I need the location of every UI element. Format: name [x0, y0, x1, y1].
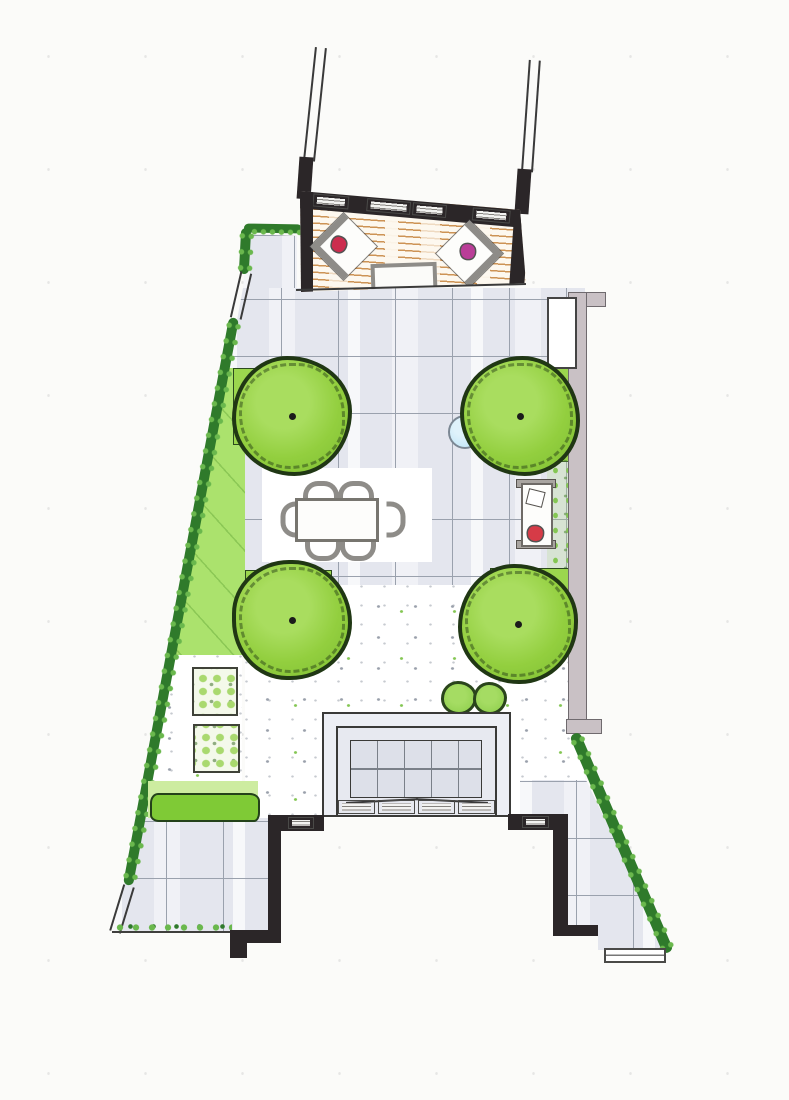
tree-bottom-left	[232, 560, 352, 680]
tree-trunk-dot	[289, 413, 296, 420]
house-wall-left	[268, 815, 281, 943]
sliding-door-panel-3	[418, 800, 455, 814]
storage-unit	[547, 297, 577, 369]
garden-plan-page	[0, 0, 789, 1100]
shrub-1	[441, 681, 477, 715]
house-wall-right	[553, 826, 568, 936]
wing-window-right	[522, 816, 549, 828]
house-wall-bottom-left	[230, 930, 281, 943]
neighbor-wall-line-right	[521, 60, 541, 173]
wing-window-left	[288, 817, 314, 829]
neighbor-wall-line-left	[303, 47, 327, 162]
sliding-door-panel-4	[458, 800, 495, 814]
dining-table	[295, 498, 379, 542]
boundary-hedge-bottom	[112, 922, 232, 933]
neighbor-wall-post-right	[514, 169, 531, 215]
house-wall-stub	[230, 943, 247, 958]
house-wall-step-right	[566, 925, 598, 936]
privacy-screen-panel-1	[312, 193, 349, 209]
privacy-screen-panel-4	[472, 207, 511, 223]
tree-top-left	[232, 356, 352, 476]
bay-inner-frame	[336, 726, 497, 817]
low-hedge	[150, 793, 260, 822]
privacy-screen-panel-3	[412, 202, 447, 218]
tree-trunk-dot	[515, 621, 522, 628]
square-planter-2	[193, 724, 240, 773]
shrub-2	[473, 682, 507, 715]
tree-bottom-right	[458, 564, 578, 684]
sliding-door-panel-2	[378, 800, 415, 814]
sliding-door-panel-1	[338, 800, 375, 814]
privacy-screen-panel-2	[366, 198, 411, 215]
house-extension-bay	[322, 712, 511, 817]
privacy-screen-band	[296, 189, 529, 228]
tree-trunk-dot	[289, 617, 296, 624]
boundary-hedge-left-upper	[239, 228, 251, 274]
glazed-roof-grid	[350, 740, 482, 798]
deck-wall-left	[298, 191, 313, 292]
tree-trunk-dot	[517, 413, 524, 420]
square-planter-1	[192, 667, 238, 716]
door-mat-step	[604, 948, 666, 963]
timber-deck	[293, 183, 533, 295]
